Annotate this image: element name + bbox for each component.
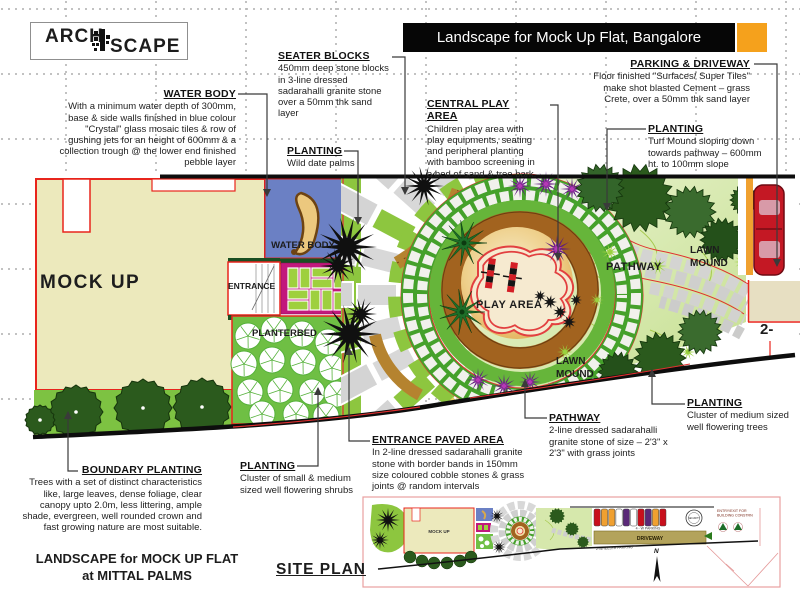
project-title-line1: LANDSCAPE for MOCK UP FLAT [26, 551, 248, 568]
archiscape-logo: ARCH SCAPE [30, 22, 188, 60]
inset-building-label: MOCK UP [428, 529, 449, 534]
note-planting-turf: PLANTING Turf Mound sloping down towards… [648, 123, 772, 170]
note-title: PATHWAY [549, 412, 671, 424]
plan-label-lawn-mound-upper: LAWN MOUND [690, 245, 740, 270]
note-planting-trees: PLANTING Cluster of medium sized well fl… [687, 397, 799, 433]
note-title: ENTRANCE PAVED AREA [372, 434, 532, 446]
note-body: Wild date palms [287, 158, 377, 169]
note-body: Cluster of medium sized well flowering t… [687, 410, 799, 432]
note-title: PLANTING [287, 145, 377, 157]
inset-security-stamp: SECURITY [688, 518, 700, 520]
plan-label-lawn-mound-lower: LAWN MOUND [556, 356, 606, 381]
note-seater-blocks: SEATER BLOCKS 450mm deep stone blocks in… [278, 50, 390, 119]
pixel-i-icon [92, 27, 110, 55]
inset-north-label: N [654, 548, 659, 555]
plan-label-building: MOCK UP [40, 272, 140, 294]
plan-label-entrance: ENTRANCE [228, 281, 280, 291]
project-title: LANDSCAPE for MOCK UP FLAT at MITTAL PAL… [26, 551, 248, 585]
note-entrance-paved: ENTRANCE PAVED AREA In 2-line dressed sa… [372, 434, 532, 492]
note-body: Trees with a set of distinct characteris… [18, 477, 202, 533]
plan-label-play-area: PLAY AREA [476, 299, 542, 311]
inset-entry-note-line1: ENTRY/EXIT FOR [717, 509, 747, 513]
note-title: PARKING & DRIVEWAY [575, 58, 750, 70]
inset-4w-parking-label: 4 - W PARKING [636, 527, 661, 531]
note-title: PLANTING [648, 123, 772, 135]
project-title-line2: at MITTAL PALMS [26, 568, 248, 585]
inset-driveway-label: DRIVEWAY [637, 536, 664, 542]
note-body: Cluster of small & medium sized well flo… [240, 473, 358, 495]
note-body: With a minimum water depth of 300mm, bas… [58, 101, 236, 168]
water-body-zone [265, 179, 345, 264]
note-title: WATER BODY [58, 88, 236, 100]
note-boundary-planting: BOUNDARY PLANTING Trees with a set of di… [18, 464, 202, 533]
note-title: CENTRAL PLAY AREA [427, 98, 539, 123]
note-body: 2-line dressed sadarahalli granite stone… [549, 425, 671, 459]
note-title: BOUNDARY PLANTING [18, 464, 202, 476]
orange-accent-square [737, 23, 767, 52]
title-banner: Landscape for Mock Up Flat, Bangalore [403, 23, 735, 52]
note-parking-driveway: PARKING & DRIVEWAY Floor finished "Surfa… [575, 58, 750, 105]
note-water-body: WATER BODY With a minimum water depth of… [58, 88, 236, 169]
plan-label-edge-note: 2- [760, 321, 773, 338]
note-body: In 2-line dressed sadarahalli granite st… [372, 447, 532, 492]
note-title: SEATER BLOCKS [278, 50, 390, 62]
note-pathway: PATHWAY 2-line dressed sadarahalli grani… [549, 412, 671, 459]
note-body: Floor finished "Surfaces/ Super Tiles" m… [575, 71, 750, 105]
note-title: PLANTING [240, 460, 358, 472]
note-body: 450mm deep stone blocks in 3-line dresse… [278, 63, 390, 119]
note-title: PLANTING [687, 397, 799, 409]
inset-entry-note-line2: BUILDING CONSTRN [717, 514, 753, 518]
plan-label-planterbed: PLANTERBED [252, 328, 317, 339]
site-plan-caption: SITE PLAN [276, 561, 366, 579]
plan-label-pathway: PATHWAY [606, 261, 662, 273]
site-plan-inset: MOCK UP 4 - W PARKING DRIVEWAY 2-WHEELER… [363, 497, 780, 587]
note-body: Turf Mound sloping down towards pathway … [648, 136, 772, 170]
note-planting-shrubs: PLANTING Cluster of small & medium sized… [240, 460, 358, 496]
note-central-play-area: CENTRAL PLAY AREA Children play area wit… [427, 98, 539, 180]
plan-label-water-body: WATER BODY [261, 240, 345, 251]
logo-text-scape: SCAPE [110, 36, 180, 58]
note-body: Children play area with play equipments,… [427, 124, 539, 180]
note-planting-palms: PLANTING Wild date palms [287, 145, 377, 170]
